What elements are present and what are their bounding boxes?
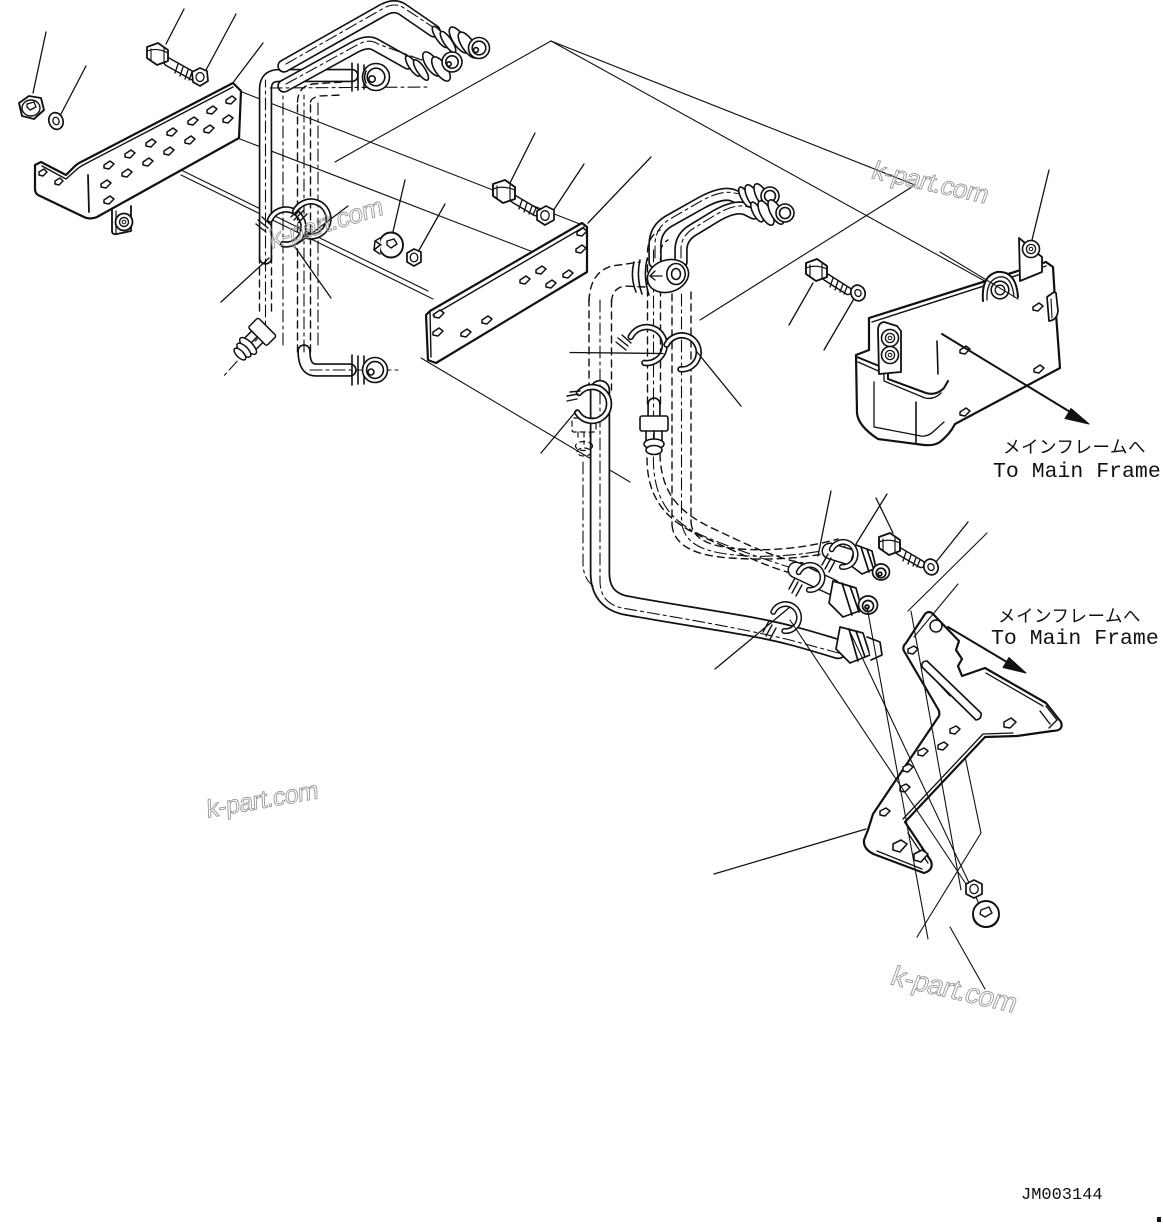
svg-text:メインフレームへ: メインフレームへ [1003, 437, 1146, 457]
svg-text:メインフレームへ: メインフレームへ [998, 606, 1141, 626]
svg-text:JM003144: JM003144 [1021, 1186, 1103, 1205]
svg-text:To Main Frame: To Main Frame [993, 460, 1161, 484]
svg-text:To Main Frame: To Main Frame [991, 627, 1159, 651]
